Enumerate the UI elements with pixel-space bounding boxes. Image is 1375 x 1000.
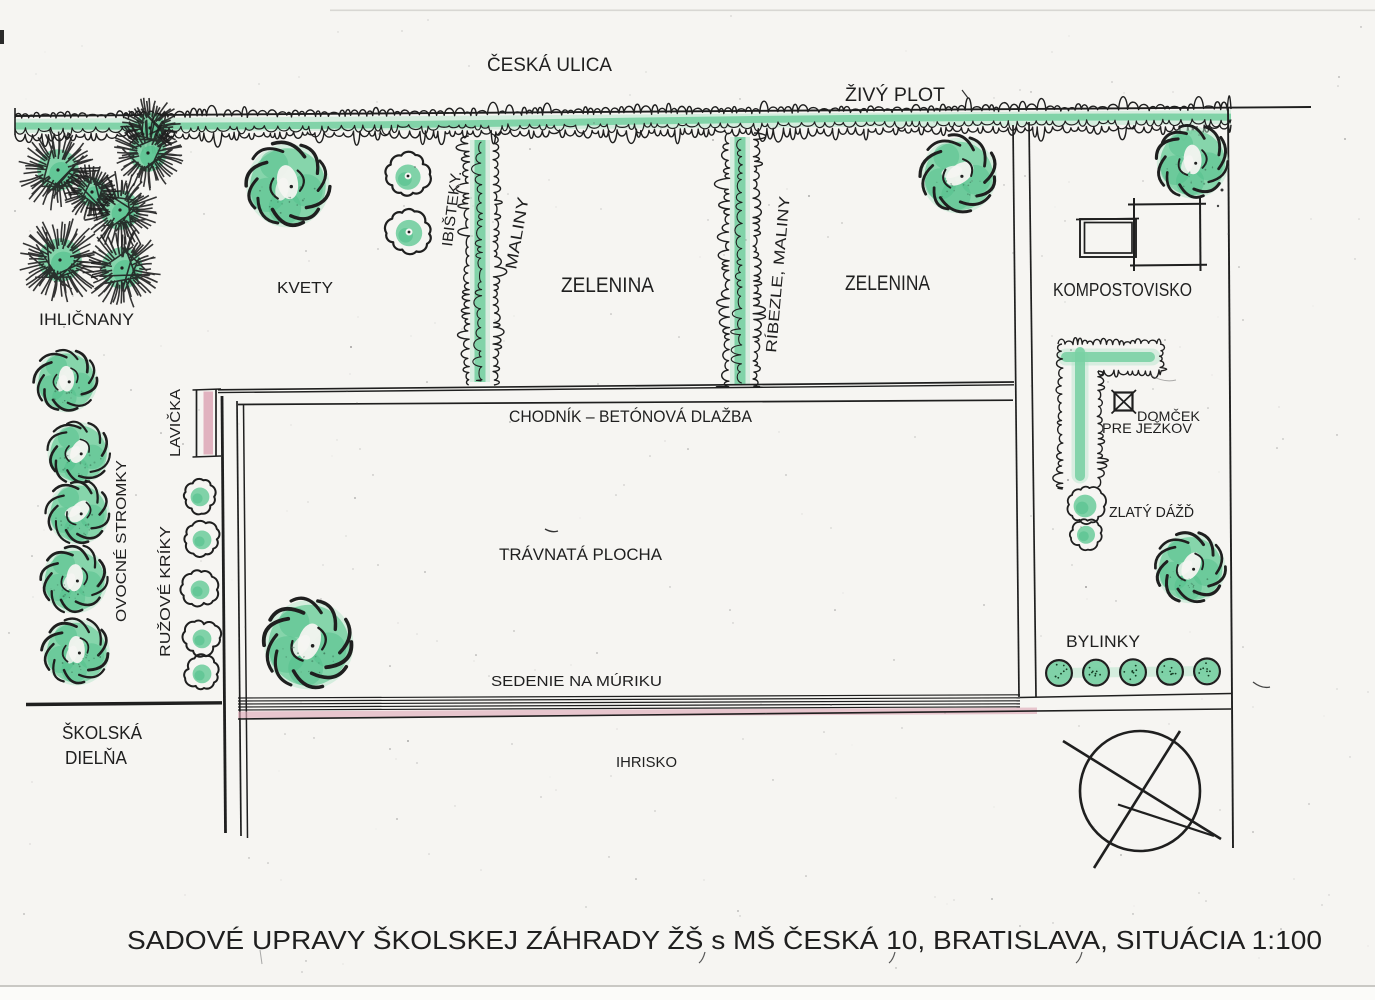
svg-text:PRE JEŽKOV: PRE JEŽKOV — [1102, 420, 1193, 436]
svg-text:TRÁVNATÁ PLOCHA: TRÁVNATÁ PLOCHA — [499, 545, 663, 564]
svg-text:KVETY: KVETY — [277, 280, 333, 297]
svg-text:CHODNÍK – BETÓNOVÁ DLAŽBA: CHODNÍK – BETÓNOVÁ DLAŽBA — [509, 407, 753, 426]
svg-text:DIELŇA: DIELŇA — [65, 748, 127, 768]
svg-text:SEDENIE NA MÚRIKU: SEDENIE NA MÚRIKU — [491, 673, 662, 690]
svg-text:ŠKOLSKÁ: ŠKOLSKÁ — [62, 722, 142, 743]
svg-text:ZELENINA: ZELENINA — [845, 272, 930, 295]
svg-text:OVOCNÉ STROMKY: OVOCNÉ STROMKY — [113, 460, 130, 622]
svg-text:ZELENINA: ZELENINA — [561, 274, 654, 297]
svg-text:IHRISKO: IHRISKO — [616, 754, 677, 771]
svg-text:ŽIVÝ PLOT: ŽIVÝ PLOT — [845, 84, 945, 106]
svg-text:BYLINKY: BYLINKY — [1066, 632, 1140, 651]
svg-text:SADOVÉ UPRAVY ŠKOLSKEJ ZÁHR: SADOVÉ UPRAVY ŠKOLSKEJ ZÁHRADY ŽŠ s MŠ Č… — [127, 925, 1322, 955]
svg-text:RUŽOVÉ KRÍKY: RUŽOVÉ KRÍKY — [157, 526, 174, 657]
svg-text:ČESKÁ ULICA: ČESKÁ ULICA — [487, 54, 612, 76]
svg-text:IHLIČNANY: IHLIČNANY — [39, 310, 134, 329]
svg-text:KOMPOSTOVISKO: KOMPOSTOVISKO — [1053, 280, 1192, 300]
svg-text:ZLATÝ DÁŽĎ: ZLATÝ DÁŽĎ — [1109, 504, 1194, 521]
svg-text:LAVIČKA: LAVIČKA — [167, 389, 184, 457]
